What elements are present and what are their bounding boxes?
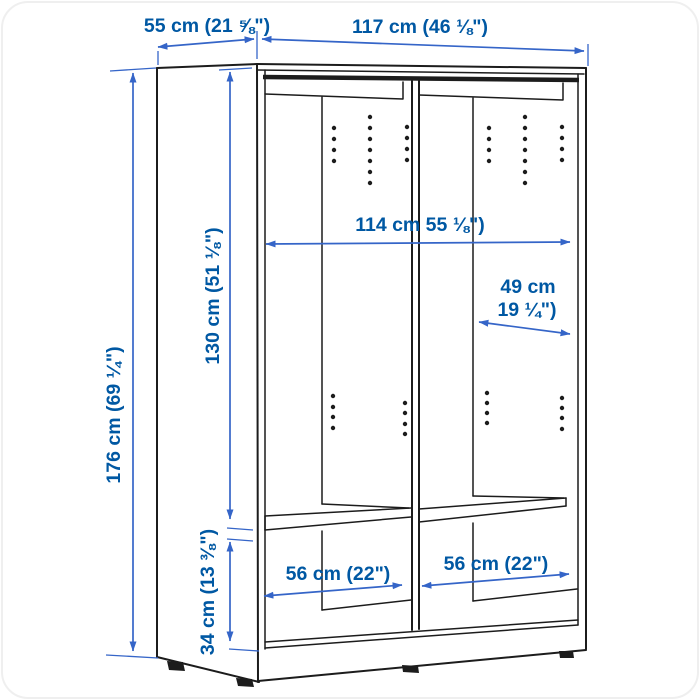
dimension-interior-depth-label-line2: 19 ¼") (497, 299, 556, 321)
dimension-interior-height-label: 130 cm (51 ⅛") (202, 227, 224, 364)
dimension-right-compartment-label: 56 cm (22") (444, 553, 549, 575)
dimension-width-label: 117 cm (46 ⅛") (352, 16, 488, 38)
dimension-height-label: 176 cm (69 ¼") (103, 346, 125, 483)
dimension-interior-width-label: 114 cm 55 ⅛") (355, 214, 485, 236)
dimension-interior-depth-label-line1: 49 cm (500, 276, 555, 298)
foot-front-right (559, 651, 574, 658)
foot-center (402, 665, 419, 673)
foot-front-left (236, 678, 254, 687)
dimension-left-compartment-label: 56 cm (22") (286, 563, 391, 585)
foot-back-left (167, 661, 185, 671)
wardrobe-dimension-diagram: 55 cm (21 ⅝") 117 cm (46 ⅛") 176 cm (69 … (0, 0, 700, 700)
left-stile-outer (257, 64, 258, 682)
dimension-depth-label: 55 cm (21 ⅝") (144, 15, 270, 37)
sliding-door-rail (263, 77, 579, 80)
product-dimension-image: 55 cm (21 ⅝") 117 cm (46 ⅛") 176 cm (69 … (0, 0, 700, 700)
dimension-lower-height-label: 34 cm (13 ⅜") (197, 529, 219, 655)
